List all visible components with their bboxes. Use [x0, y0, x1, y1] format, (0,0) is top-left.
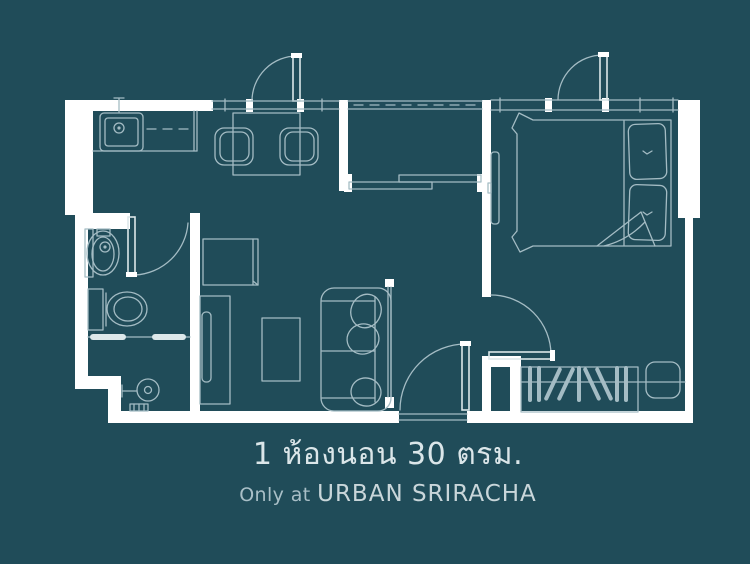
dining-chair-icon	[280, 128, 318, 165]
balcony-sliding-door-icon	[349, 175, 481, 189]
bathroom-door-icon	[126, 217, 188, 277]
shower-partition-icon	[88, 334, 190, 340]
entry-door-icon	[252, 53, 302, 101]
subtitle-prefix: Only at	[239, 484, 310, 506]
shower-head-icon	[122, 379, 159, 401]
brand-name: URBAN SRIRACHA	[317, 481, 537, 507]
hanger-icons	[530, 368, 626, 400]
caption: 1 ห้องนอน 30 ตรม. Only at URBAN SRIRACHA	[13, 437, 750, 508]
kitchen-counter	[93, 111, 197, 151]
hall-door-icon	[399, 341, 471, 420]
walls	[65, 98, 700, 423]
sofa-icon	[321, 288, 391, 411]
window-wall	[212, 99, 339, 111]
coffee-table-icon	[262, 318, 300, 381]
subtitle: Only at URBAN SRIRACHA	[13, 481, 750, 508]
floor-plan-page: 1 ห้องนอน 30 ตรม. Only at URBAN SRIRACHA	[0, 0, 750, 564]
bedroom-entry-door-icon	[558, 52, 609, 100]
double-bed-icon	[512, 113, 671, 252]
unit-title: 1 ห้องนอน 30 ตรม.	[13, 437, 750, 473]
toilet-icon	[88, 289, 147, 330]
bedroom-window-wall	[491, 98, 678, 112]
floor-drain-icon	[130, 404, 148, 411]
dining-table-icon	[233, 113, 300, 175]
wardrobe-icon	[521, 367, 685, 412]
bed-throw-icon	[597, 212, 655, 246]
balcony-railing-icon	[348, 101, 482, 109]
tv-cabinet-icon	[200, 296, 230, 404]
refrigerator-cabinet-icon	[203, 239, 258, 285]
bedroom-inner-door-icon	[489, 295, 555, 361]
washbasin-icon	[85, 229, 119, 277]
ac-unit-icon	[646, 362, 680, 398]
dining-chair-icon	[215, 128, 253, 165]
pillow-icon	[628, 123, 667, 179]
